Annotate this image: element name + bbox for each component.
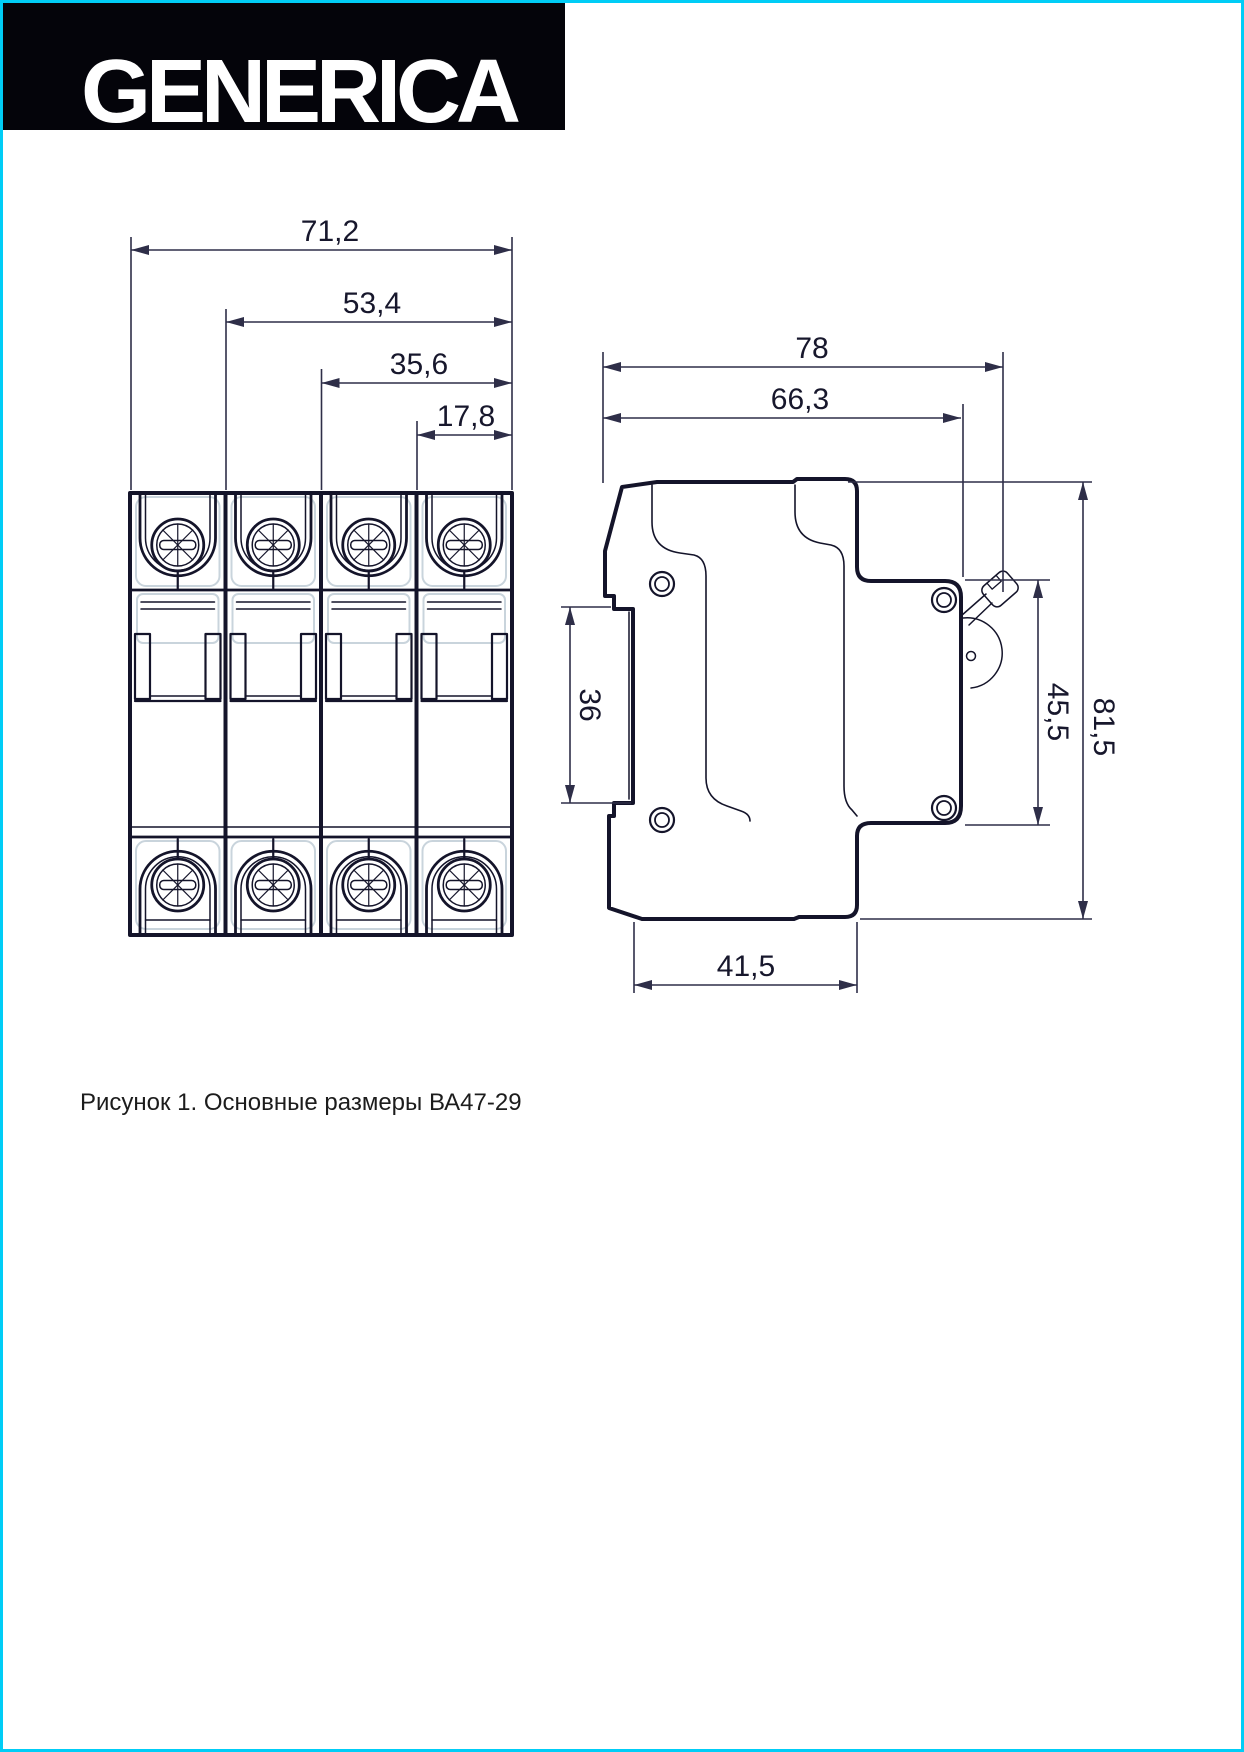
document-page: GENERICA [0,0,1244,1752]
rivet [650,572,674,596]
pole-4 [422,495,508,933]
dim-label-41-5: 41,5 [717,950,775,983]
dim-label-36: 36 [573,688,606,721]
figure-caption: Рисунок 1. Основные размеры ВА47-29 [80,1089,522,1117]
dim-label-45-5: 45,5 [1041,683,1074,741]
molding-seam [795,485,857,816]
dim-label-78: 78 [795,332,828,365]
front-dimensions: 71,2 53,4 35,6 17,8 [131,215,512,490]
dim-label-53-4: 53,4 [343,287,401,320]
molding-seam [652,485,750,821]
side-view: 78 66,3 36 45,5 81,5 [561,332,1120,993]
pole-2 [231,495,317,933]
dim-label-81-5: 81,5 [1087,698,1120,756]
side-dimensions: 78 66,3 36 45,5 81,5 [561,332,1120,993]
rivet [650,808,674,832]
pole-1 [135,495,221,933]
dim-label-66-3: 66,3 [771,383,829,416]
toggle-handle [961,569,1021,688]
dim-label-71-2: 71,2 [301,215,359,248]
pole-3 [326,495,412,933]
technical-drawing: 71,2 53,4 35,6 17,8 [3,3,1241,1110]
rivet [932,796,956,820]
rivet [932,588,956,612]
dim-label-35-6: 35,6 [390,348,448,381]
dim-label-17-8: 17,8 [437,400,495,433]
side-body-outline [605,479,961,919]
front-view: 71,2 53,4 35,6 17,8 [130,215,512,935]
